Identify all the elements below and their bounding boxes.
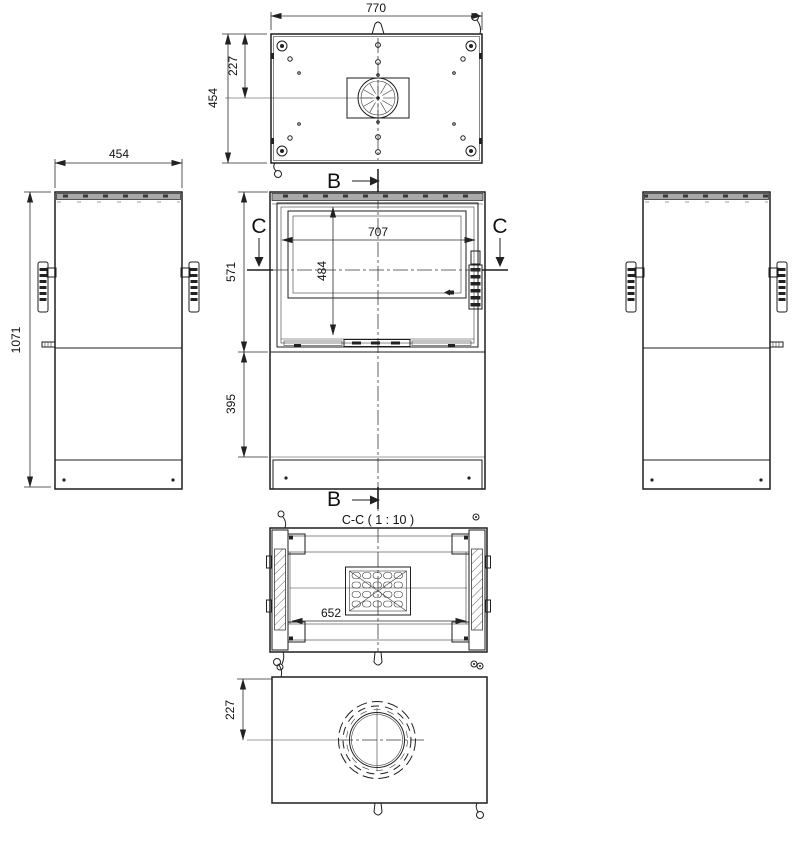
- left-side-view: 454 1071: [9, 147, 199, 489]
- latch: [770, 342, 783, 347]
- section-cc-view: C-C ( 1 : 10 ): [267, 511, 491, 670]
- marker-c-label: C: [251, 215, 266, 238]
- corner-hook-icon: [274, 659, 281, 666]
- dim-flue-offset: 227: [223, 679, 272, 740]
- dim-glass-height: 484: [315, 207, 333, 335]
- dim-text-484: 484: [315, 261, 329, 281]
- dim-text-395: 395: [224, 394, 238, 414]
- dim-top-depth: 454: [206, 34, 267, 163]
- drawing-canvas: 770 454 227 B: [0, 0, 802, 851]
- dim-lower-height: 395: [224, 352, 268, 457]
- top-view: 770 454 227: [206, 1, 482, 178]
- lifting-clip: [372, 22, 384, 34]
- corner-hook-icon: [275, 171, 282, 178]
- dim-text-227-top: 227: [226, 56, 240, 76]
- latch: [42, 342, 55, 347]
- side-handle-left[interactable]: [626, 262, 644, 312]
- dim-overall-height: 1071: [9, 192, 51, 487]
- dim-section-width: 652: [292, 606, 466, 621]
- bottom-view: 227: [223, 659, 487, 819]
- bottom-clip: [374, 652, 382, 665]
- glass-mark-icon: [444, 290, 450, 296]
- corner-hook-icon: [472, 14, 479, 21]
- technical-drawing-page: 770 454 227 B: [0, 0, 802, 851]
- bottom-clip: [374, 803, 382, 815]
- section-marker-c-right: C: [492, 215, 507, 267]
- top-air-grille: [272, 194, 483, 201]
- dim-text-652: 652: [321, 606, 341, 620]
- plinth: [273, 460, 482, 489]
- door-handle[interactable]: [469, 251, 482, 309]
- dim-text-571: 571: [224, 262, 238, 282]
- section-title: C-C ( 1 : 10 ): [342, 513, 414, 527]
- dim-top-center-offset: 227: [226, 34, 245, 98]
- dim-top-width: 770: [271, 1, 482, 30]
- right-side-view: [626, 192, 787, 489]
- marker-b-label: B: [327, 488, 341, 511]
- dim-text-227-bottom: 227: [223, 700, 237, 720]
- dim-text-770: 770: [366, 1, 386, 15]
- side-handle-right[interactable]: [181, 262, 199, 312]
- section-marker-b-top: B: [327, 169, 380, 193]
- dim-text-454-side: 454: [109, 147, 129, 161]
- wall-insulation-left: [275, 549, 286, 630]
- side-handle-left[interactable]: [38, 262, 56, 312]
- dim-glass-width: 707: [282, 225, 475, 240]
- front-view: C C 707 484 571 395: [224, 170, 508, 511]
- dim-text-707: 707: [368, 225, 388, 239]
- dim-side-width: 454: [55, 147, 182, 188]
- section-marker-b-bottom: B: [327, 487, 380, 511]
- corner-hook-icon: [278, 511, 284, 517]
- marker-b-label: B: [327, 170, 341, 193]
- wall-insulation-right: [472, 549, 483, 630]
- dim-text-1071: 1071: [9, 326, 23, 353]
- section-marker-c-left: C: [251, 215, 266, 267]
- marker-c-label: C: [492, 215, 507, 238]
- dim-text-454-top: 454: [206, 88, 220, 108]
- side-handle-right[interactable]: [769, 262, 787, 312]
